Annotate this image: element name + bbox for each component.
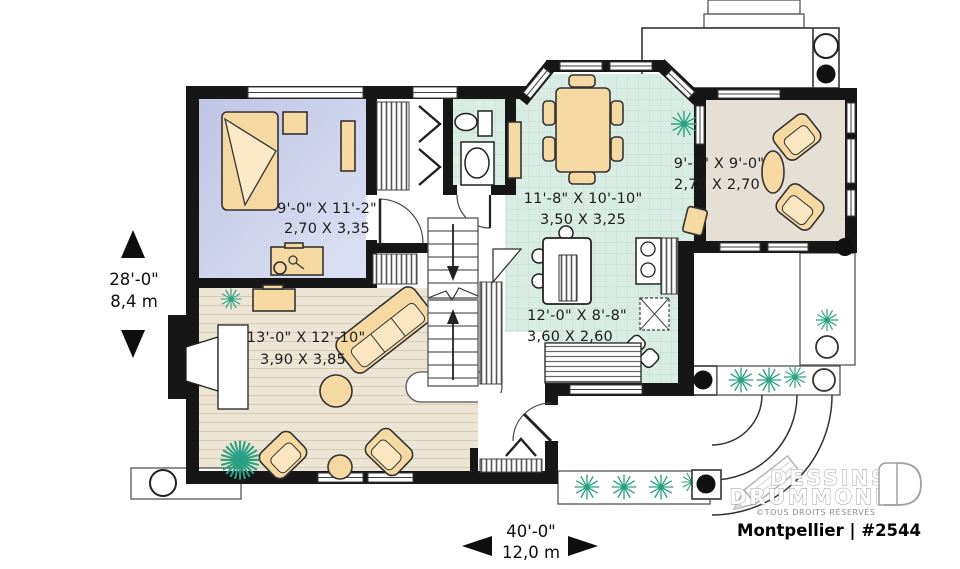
toilet: [455, 114, 477, 131]
brand-logo: DESSINS DRUMMOND ©TOUS DROITS RÉSERVÉS M…: [728, 456, 921, 541]
depth-metric: 8,4 m: [110, 292, 158, 311]
nightstand: [283, 112, 307, 134]
width-dimension: 40'-0" 12,0 m: [462, 522, 598, 562]
depth-imperial: 28'-0": [109, 270, 159, 289]
floor-plan-drawing: 9'-0" X 11'-2" 2,70 X 3,35 11'-8" X 10'-…: [0, 0, 960, 569]
plan-title: Montpellier | #2544: [737, 521, 921, 541]
dresser: [341, 121, 355, 171]
arrow-up-icon: [121, 230, 145, 258]
deck-column: [814, 34, 838, 58]
knee-wall: [480, 282, 502, 384]
buffet: [508, 122, 521, 178]
hall-transition: [373, 254, 417, 284]
chair: [611, 101, 623, 125]
side-table: [762, 151, 784, 193]
brand-name-line2: DRUMMOND: [729, 485, 894, 509]
chair: [543, 137, 555, 161]
chair: [569, 172, 595, 184]
arrow-down-icon: [121, 330, 145, 358]
floor-plan-sheet: 9'-0" X 11'-2" 2,70 X 3,35 11'-8" X 10'-…: [0, 0, 960, 569]
desk-chair: [274, 262, 286, 274]
dining-dim-imperial: 11'-8" X 10'-10": [524, 191, 643, 207]
closet-shelves: [377, 102, 409, 190]
dining-table: [556, 88, 610, 172]
dining-dim-metric: 3,50 X 3,25: [540, 212, 626, 228]
coffee-table: [320, 375, 352, 407]
cabinet: [253, 289, 295, 311]
sunroom-corner-post: [836, 238, 854, 256]
width-imperial: 40'-0": [506, 522, 556, 541]
foyer: [478, 393, 551, 472]
depth-dimension: 28'-0" 8,4 m: [109, 230, 159, 358]
width-metric: 12,0 m: [502, 543, 560, 562]
ottoman: [328, 455, 352, 479]
living-dim-imperial: 13'-0" X 12'-10": [247, 330, 366, 346]
living-dim-metric: 3,90 X 3,85: [260, 352, 346, 368]
hearth: [218, 325, 248, 409]
arrow-left-icon: [462, 536, 492, 556]
deck-post: [817, 65, 836, 84]
sunroom-dim-imperial: 9'-0" X 9'-0": [674, 156, 764, 172]
bedroom-dim-metric: 2,70 X 3,35: [284, 221, 370, 237]
bifold-doors: [419, 106, 440, 185]
chair: [543, 101, 555, 125]
fireplace-box: [186, 337, 218, 391]
kitchen-dim-metric: 3,60 X 2,60: [527, 329, 613, 345]
arrow-right-icon: [568, 536, 598, 556]
chair: [611, 137, 623, 161]
kitchen-dim-imperial: 12'-0" X 8'-8": [527, 308, 627, 324]
counter: [661, 238, 678, 294]
entry-mat: [480, 459, 542, 472]
brand-copyright: ©TOUS DROITS RÉSERVÉS: [756, 506, 876, 517]
chair: [569, 75, 595, 87]
bedroom-door-arc: [379, 199, 423, 243]
brand-d-icon: [879, 463, 921, 505]
bedroom-dim-imperial: 9'-0" X 11'-2": [277, 201, 377, 217]
counter: [545, 343, 641, 383]
sunroom-dim-metric: 2,70 X 2,70: [674, 177, 760, 193]
